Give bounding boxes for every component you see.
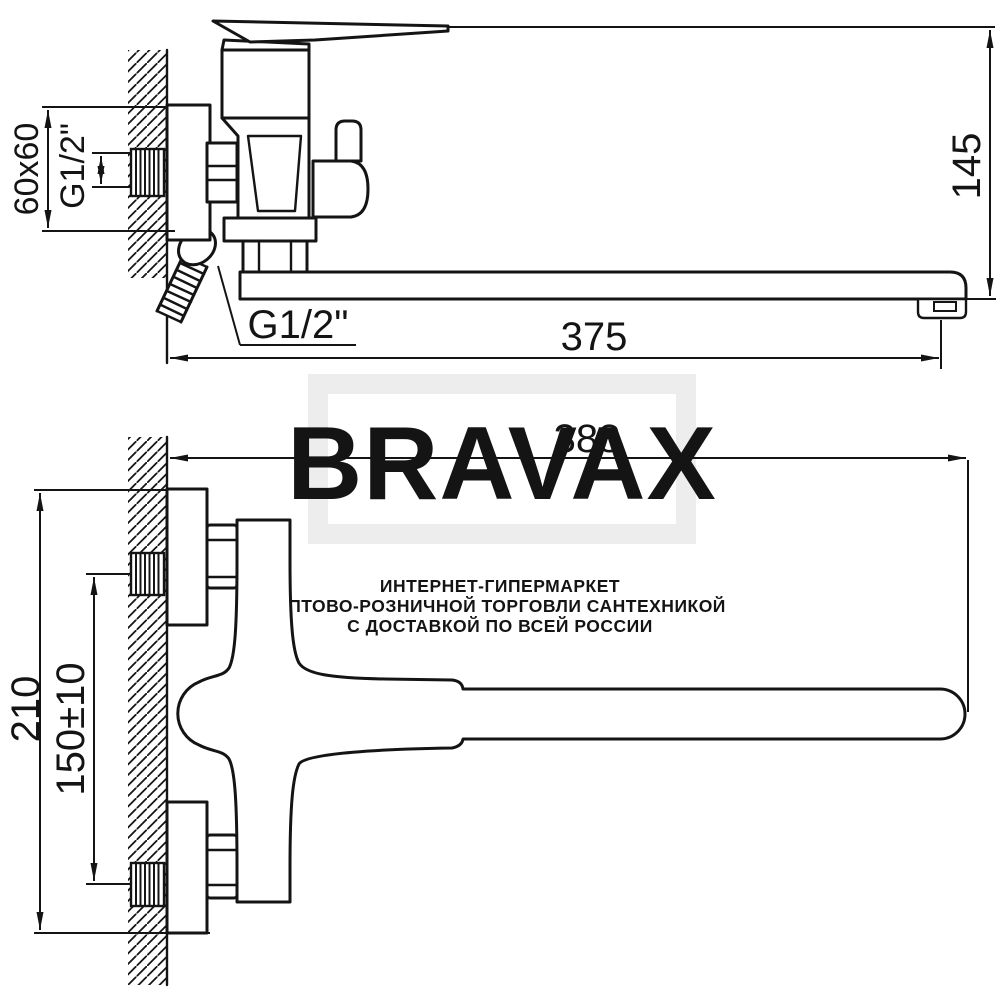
dim-width-label: 388 xyxy=(554,417,621,461)
dimension-inlet-spacing: 150±10 xyxy=(49,574,131,884)
wall-plate-top xyxy=(167,489,207,625)
dimension-inlet-thread: G1/2" xyxy=(54,123,131,209)
inlet-thread xyxy=(131,149,164,196)
handle-lever xyxy=(213,21,448,42)
dimension-height: 145 xyxy=(448,27,996,299)
dim-height-label: 145 xyxy=(945,133,989,200)
watermark-tagline-1: ИНТЕРНЕТ-ГИПЕРМАРКЕТ xyxy=(380,576,620,596)
dim-inlet-spacing-label: 150±10 xyxy=(49,662,93,795)
technical-drawing-page: BRAVAX ИНТЕРНЕТ-ГИПЕРМАРКЕТ ОПТОВО-РОЗНИ… xyxy=(0,0,1000,1000)
body-flange xyxy=(224,218,316,241)
wall-plate-side xyxy=(167,105,210,240)
dim-total-height-label: 210 xyxy=(4,676,48,743)
dim-wall-plate-label: 60x60 xyxy=(8,123,46,216)
watermark-tagline-2: ОПТОВО-РОЗНИЧНОЙ ТОРГОВЛИ САНТЕХНИКОЙ xyxy=(274,595,726,616)
dim-inlet-thread-label: G1/2" xyxy=(54,123,92,209)
watermark-tagline-3: С ДОСТАВКОЙ ПО ВСЕЙ РОССИИ xyxy=(347,615,653,636)
inlet-thread-top xyxy=(131,553,164,595)
diverter-knob xyxy=(313,161,368,217)
inlet-nut-side xyxy=(207,143,237,202)
hex-connector-bottom xyxy=(207,835,237,898)
dim-shower-thread-label: G1/2" xyxy=(248,303,349,347)
inlet-thread-bottom xyxy=(131,863,164,906)
hex-connector-top xyxy=(207,525,237,588)
spout-nut xyxy=(243,241,307,272)
faucet-body-side xyxy=(207,21,966,318)
watermark-brand-text: BRAVAX xyxy=(287,406,717,522)
upper-housing xyxy=(222,50,309,118)
diverter-stem xyxy=(336,121,361,161)
wall-plate-bottom xyxy=(167,802,207,933)
faucet-dimension-drawing: BRAVAX ИНТЕРНЕТ-ГИПЕРМАРКЕТ ОПТОВО-РОЗНИ… xyxy=(0,0,1000,1000)
dim-spout-reach-label: 375 xyxy=(561,315,628,359)
side-view: 60x60 G1/2" 145 375 G1/2" xyxy=(8,21,996,369)
spout-side xyxy=(240,272,966,299)
watermark: BRAVAX ИНТЕРНЕТ-ГИПЕРМАРКЕТ ОПТОВО-РОЗНИ… xyxy=(274,384,726,636)
